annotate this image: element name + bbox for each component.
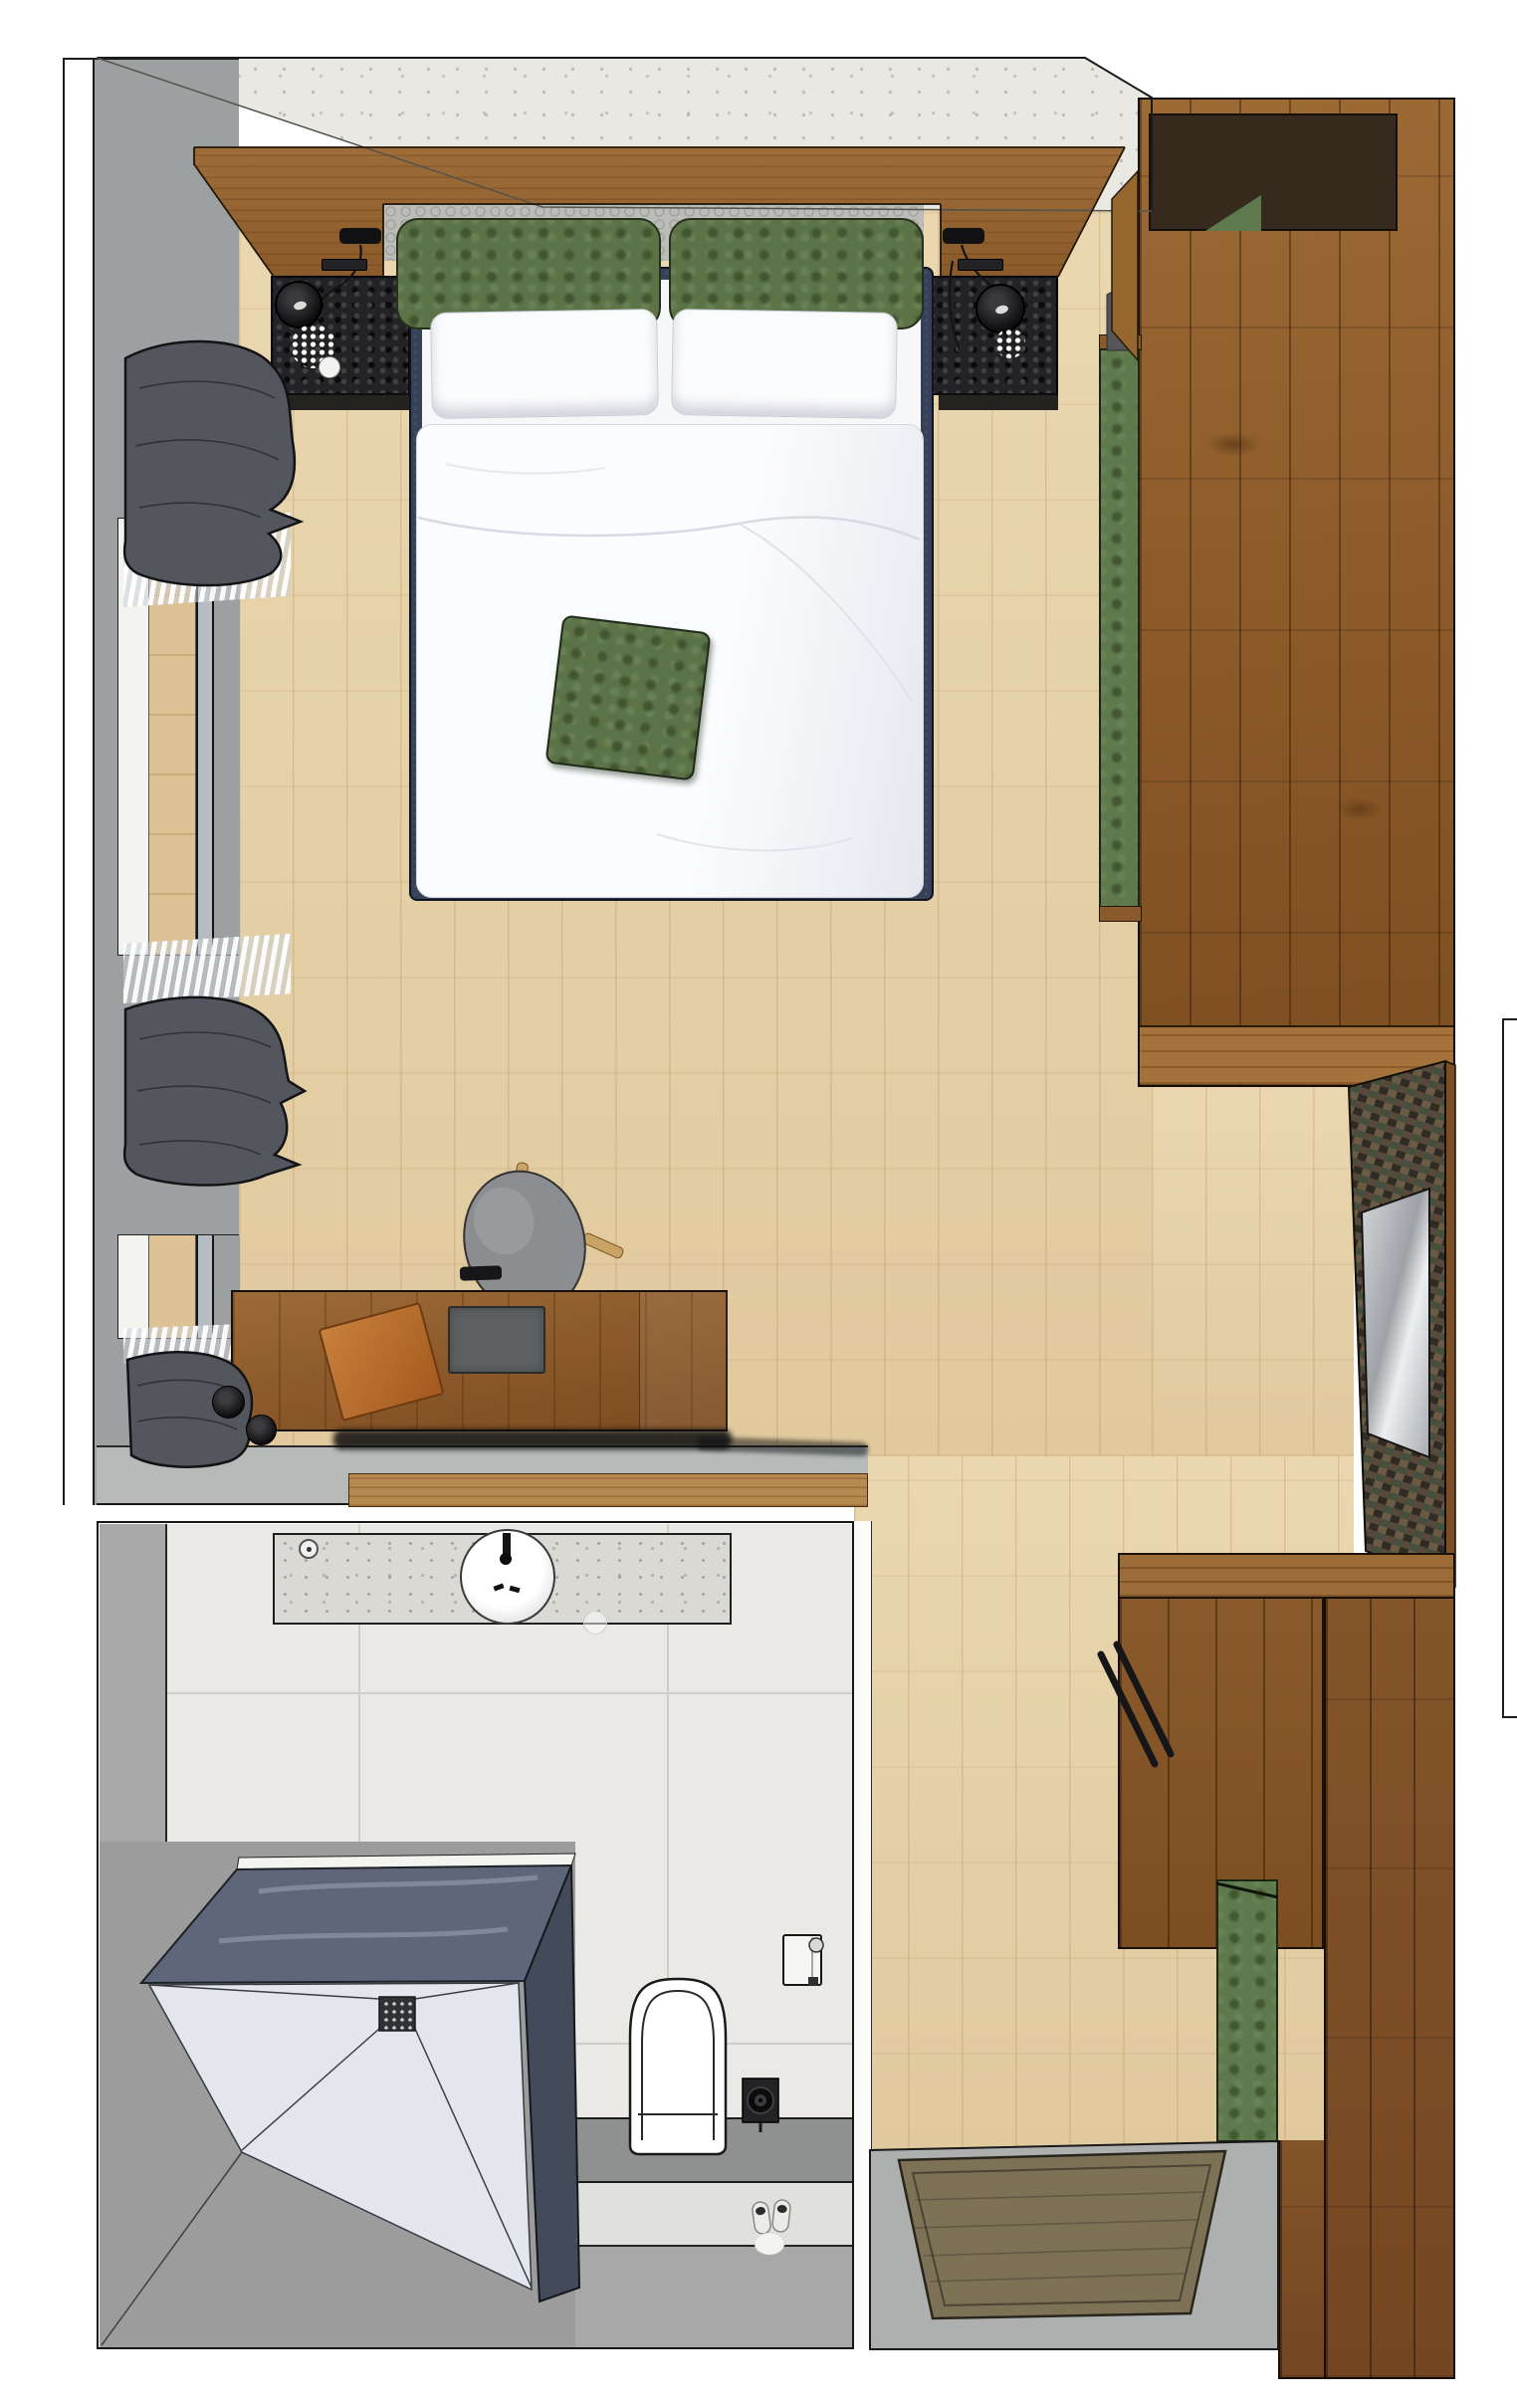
floor-plan-canvas (0, 0, 1517, 2408)
legend-box-cut-off (1502, 1018, 1517, 1718)
wall-hung-toilet (630, 1979, 726, 2154)
entry-area (870, 2141, 1278, 2349)
toilet-brush (743, 2079, 778, 2132)
fluffy-pompom (755, 2233, 784, 2255)
sloped-shower-floor (149, 1983, 532, 2290)
toilet-body (630, 1979, 726, 2154)
fixtures-overlay (0, 0, 1517, 2408)
toilet-paper-holder (783, 1935, 823, 1986)
floor-drain (379, 1997, 415, 2031)
slippers (752, 2199, 791, 2255)
walk-in-shower (102, 1854, 579, 2345)
towel-rail-handles (1101, 1644, 1171, 1764)
doormat (899, 2151, 1225, 2318)
floor-corner-line (102, 2152, 242, 2345)
niche-top-edge (1216, 1883, 1278, 1897)
